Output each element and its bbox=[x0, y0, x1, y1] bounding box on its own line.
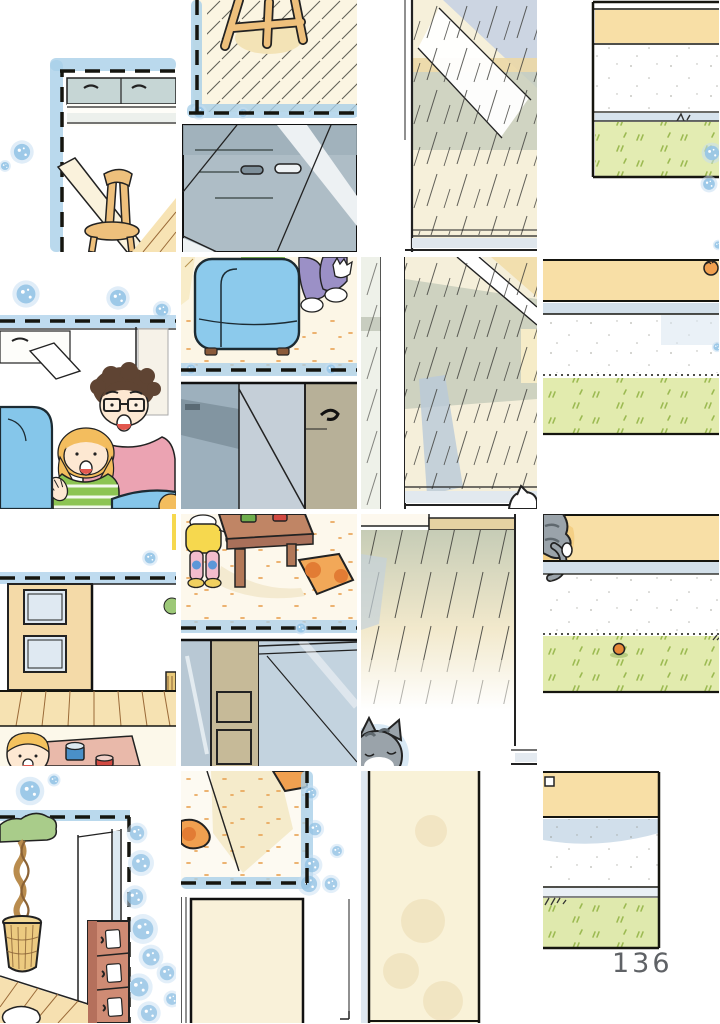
tile-yard-strip-top bbox=[593, 2, 720, 250]
tile-yard-strip-ball bbox=[543, 514, 720, 692]
red-cup bbox=[96, 755, 113, 766]
tile-plant-and-drawers bbox=[0, 774, 180, 1024]
cat-paw bbox=[704, 261, 718, 275]
chest-of-drawers bbox=[88, 921, 129, 1023]
armchair bbox=[195, 259, 299, 355]
tile-kitchen-corner-chair bbox=[0, 58, 176, 252]
page-number: 136 bbox=[612, 948, 672, 979]
tile-cushion-corner-door bbox=[181, 771, 349, 1023]
tile-toddler-at-table bbox=[181, 514, 357, 766]
tile-yard-strip-pagecorner bbox=[543, 772, 659, 948]
tile-window-reflection bbox=[405, 0, 537, 252]
tile-family-peeking bbox=[0, 280, 183, 518]
scrambled-illustration-page: 136 bbox=[0, 0, 720, 1024]
topiary-plant bbox=[0, 813, 56, 971]
tile-deck-and-sleeping-cat bbox=[348, 514, 537, 785]
tile-sliding-glass-door bbox=[361, 257, 537, 509]
illustration-canvas bbox=[0, 0, 720, 1024]
tile-stool-and-counter bbox=[183, 0, 359, 252]
tile-armchair-and-hallway bbox=[181, 257, 357, 509]
hallway bbox=[181, 383, 357, 509]
tile-cream-door-panel bbox=[361, 771, 479, 1023]
tile-door-and-play-table bbox=[0, 514, 180, 775]
angled-frames bbox=[181, 640, 357, 766]
blue-cup bbox=[66, 743, 84, 761]
blond-child-head bbox=[7, 733, 49, 775]
tile-yard-strip-paw bbox=[543, 260, 720, 434]
child-figure bbox=[45, 428, 119, 509]
